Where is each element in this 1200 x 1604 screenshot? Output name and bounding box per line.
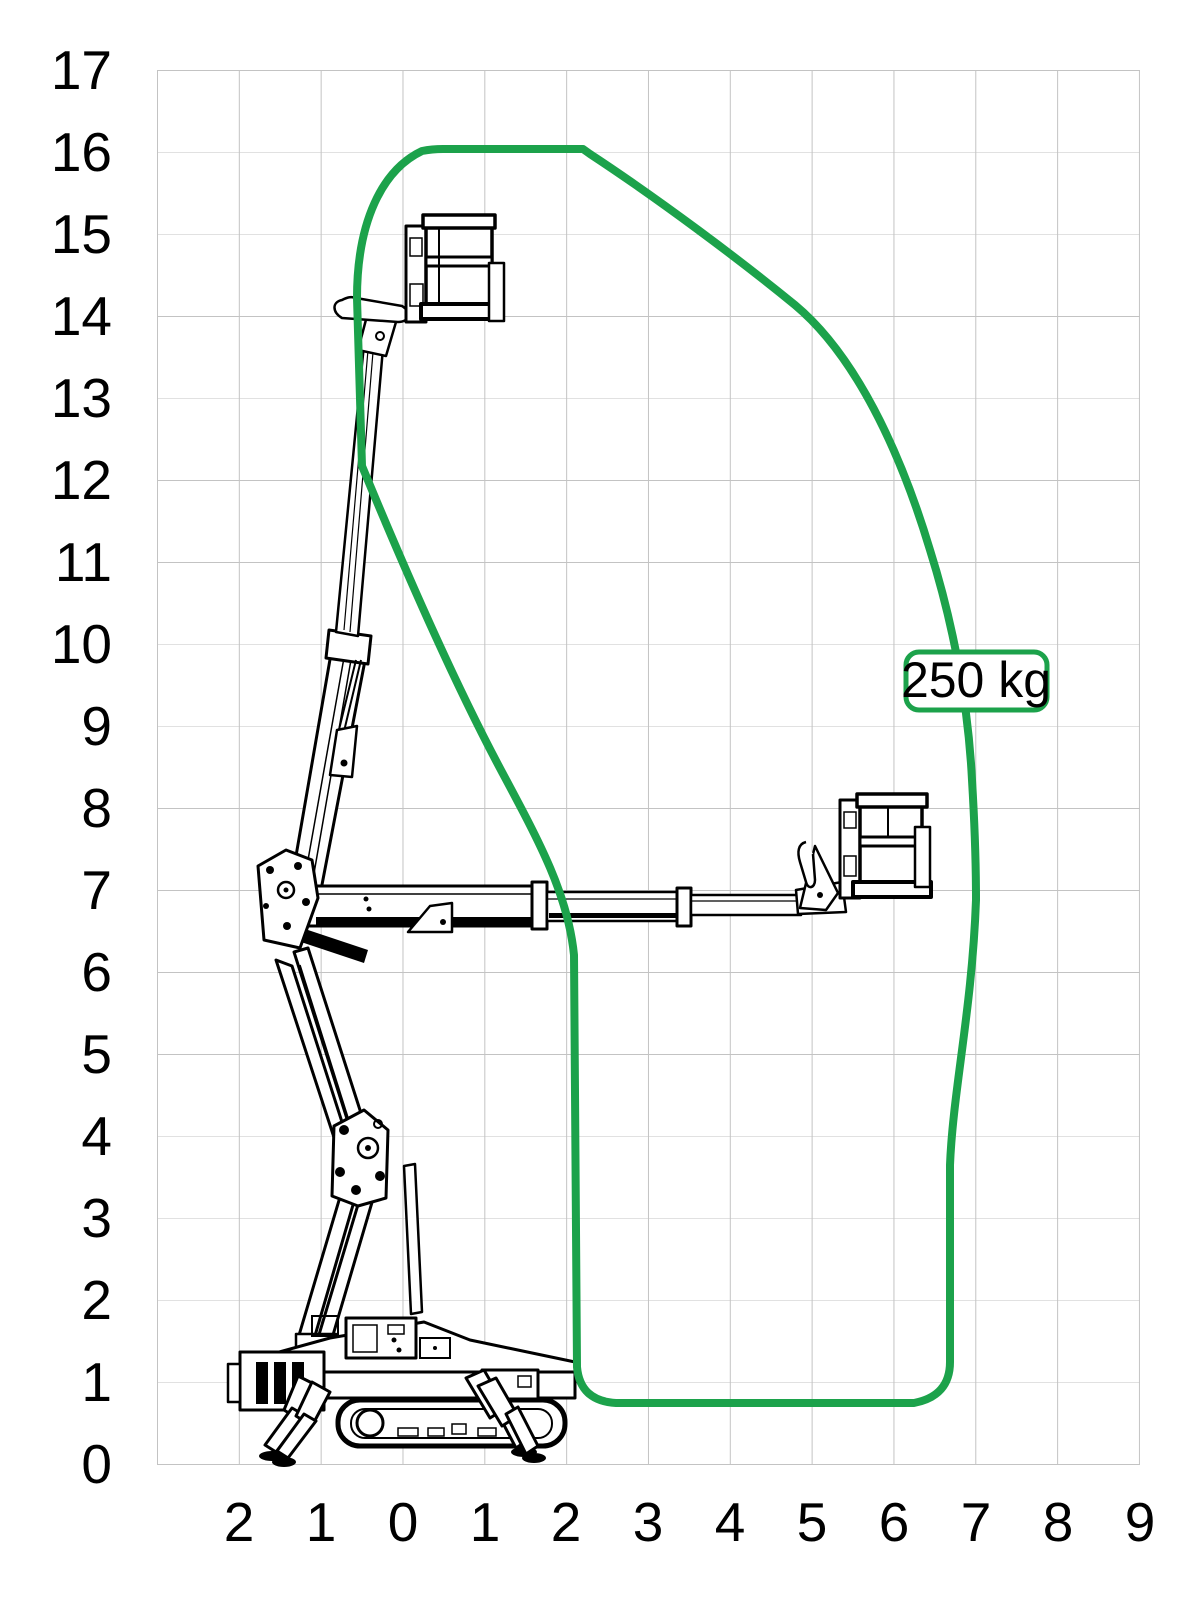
outreach-basket [840, 794, 931, 898]
basket-horn [798, 842, 815, 887]
basket-horn [335, 297, 409, 322]
load-label: 250 kg [901, 652, 1051, 710]
load-label-text: 250 kg [901, 652, 1051, 708]
chart-overlay: 250 kg [0, 0, 1200, 1604]
chassis [228, 1318, 575, 1410]
lower-arm-linkage [276, 948, 422, 1356]
vertical-boom [287, 297, 408, 916]
working-envelope-chart: 17 16 15 14 13 12 11 10 9 8 7 6 5 4 3 2 … [0, 0, 1200, 1604]
top-basket [406, 215, 504, 322]
envelope-curve [357, 149, 976, 1403]
